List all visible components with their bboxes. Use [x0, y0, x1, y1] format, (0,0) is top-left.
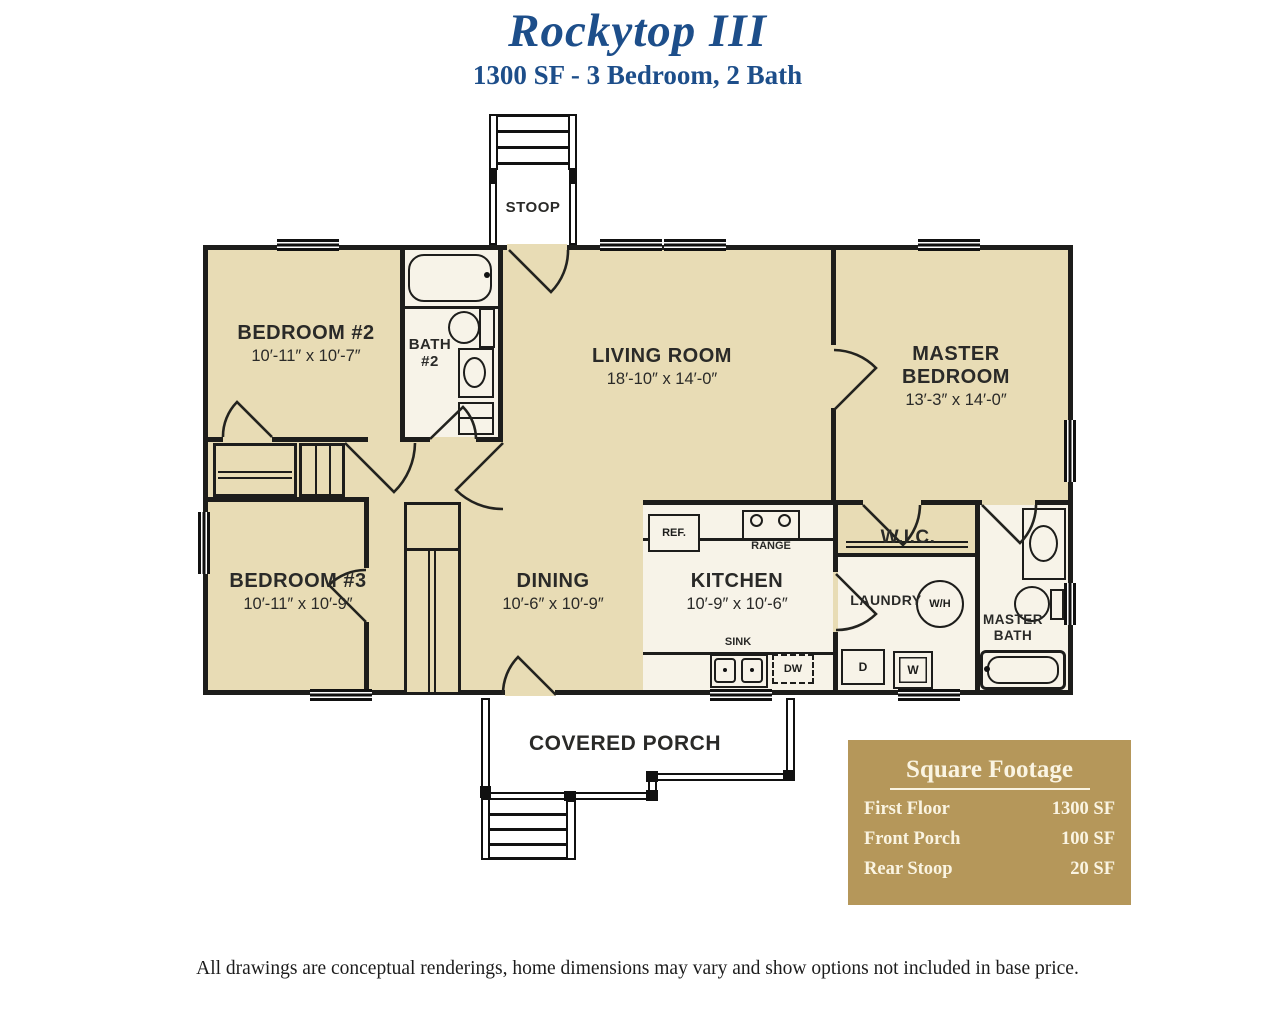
room-label-master-bath: MASTER BATH: [972, 612, 1054, 643]
floor-plan-page: Rockytop III 1300 SF - 3 Bedroom, 2 Bath…: [0, 0, 1275, 1032]
porch-rail: [481, 698, 490, 798]
closet-divider: [315, 446, 317, 494]
kitchen-name: KITCHEN: [647, 570, 827, 593]
bedroom2-name: BEDROOM #2: [216, 322, 396, 345]
wall: [833, 500, 863, 505]
wall: [498, 245, 503, 442]
porch-rail: [786, 698, 795, 778]
living-dims: 18′-10″ x 14′-0″: [562, 370, 762, 389]
window: [710, 689, 772, 701]
wall: [364, 622, 369, 695]
stoop-stair-rail: [489, 114, 498, 170]
stair-tread: [490, 813, 566, 816]
range-burner: [778, 514, 791, 527]
dryer-label: D: [859, 660, 868, 674]
room-label-laundry: LAUNDRY: [834, 592, 938, 608]
porch-post: [646, 790, 658, 801]
square-footage-row: Rear Stoop 20 SF: [848, 859, 1131, 880]
wall: [400, 437, 430, 442]
room-label-kitchen: KITCHEN 10′-9″ x 10′-6″: [647, 570, 827, 614]
window: [898, 689, 960, 701]
square-footage-row: First Floor 1300 SF: [848, 799, 1131, 820]
bathtub-inner: [987, 656, 1059, 684]
sqft-row-label: Rear Stoop: [864, 859, 953, 880]
stair-tread: [490, 843, 566, 846]
washer-label: W: [907, 663, 918, 677]
sqft-row-label: First Floor: [864, 799, 950, 820]
porch-post: [783, 770, 795, 781]
stoop-stair-rail: [568, 114, 577, 170]
window: [277, 239, 339, 251]
rear-door-opening: [505, 689, 555, 696]
dryer: D: [841, 649, 885, 685]
stoop-post: [569, 172, 577, 184]
ref-label: REF.: [662, 527, 686, 539]
wic-wall: [838, 553, 975, 557]
wic-name: W.I.C.: [848, 527, 968, 549]
linen-shelf: [460, 417, 492, 419]
laundry-name: LAUNDRY: [834, 592, 938, 608]
window: [664, 239, 726, 251]
window: [1064, 420, 1076, 482]
room-label-bath2: BATH #2: [404, 336, 456, 371]
wall: [833, 502, 838, 572]
stoop-post: [489, 172, 497, 184]
wall: [831, 245, 836, 345]
master-dims: 13′-3″ x 14′-0″: [872, 391, 1040, 410]
wall: [833, 632, 838, 695]
sink-basin: [1029, 525, 1058, 562]
bath2-name: BATH #2: [404, 336, 456, 371]
window: [918, 239, 980, 251]
wall: [364, 497, 369, 568]
porch-post: [646, 771, 658, 782]
room-label-bedroom3: BEDROOM #3 10′-11″ x 10′-9″: [208, 570, 388, 614]
window: [310, 689, 372, 701]
sqft-row-label: Front Porch: [864, 829, 960, 850]
dw-label: DW: [784, 663, 802, 675]
wall: [203, 437, 223, 442]
sink-basin: [463, 357, 486, 388]
porch-name: COVERED PORCH: [520, 732, 730, 756]
wall: [921, 500, 982, 505]
sqft-row-value: 1300 SF: [1052, 799, 1115, 820]
stair-tread: [490, 857, 566, 860]
room-label-dining: DINING 10′-6″ x 10′-9″: [463, 570, 643, 614]
stair-tread: [498, 162, 568, 165]
stair-tread: [490, 828, 566, 831]
sink-drain: [750, 668, 754, 672]
closet-divider: [428, 551, 430, 692]
front-door-opening: [507, 244, 567, 251]
stair-tread: [498, 114, 568, 117]
sink-label: SINK: [710, 636, 766, 648]
tub-faucet: [484, 272, 490, 278]
bedroom3-dims: 10′-11″ x 10′-9″: [208, 595, 388, 614]
room-label-bedroom2: BEDROOM #2 10′-11″ x 10′-7″: [216, 322, 396, 366]
tub-faucet: [984, 666, 990, 672]
square-footage-title: Square Footage: [890, 756, 1090, 790]
room-label-porch: COVERED PORCH: [520, 732, 730, 756]
wall: [1035, 500, 1073, 505]
closet-divider: [434, 551, 436, 692]
room-label-living: LIVING ROOM 18′-10″ x 14′-0″: [562, 345, 762, 389]
bedroom3-name: BEDROOM #3: [208, 570, 388, 593]
porch-stair-rail: [481, 798, 490, 860]
sqft-row-value: 100 SF: [1061, 829, 1115, 850]
window: [600, 239, 662, 251]
disclaimer-text: All drawings are conceptual renderings, …: [0, 958, 1275, 980]
window: [198, 512, 210, 574]
porch-post: [480, 786, 491, 798]
wall: [643, 500, 833, 505]
wall: [831, 408, 836, 505]
closet-bedroom3: [404, 502, 461, 695]
square-footage-row: Front Porch 100 SF: [848, 829, 1131, 850]
porch-stair-rail: [566, 800, 576, 860]
closet-shelf: [218, 477, 292, 479]
window: [1064, 583, 1076, 625]
refrigerator: REF.: [648, 514, 700, 552]
living-name: LIVING ROOM: [562, 345, 762, 368]
room-label-wic: W.I.C.: [848, 527, 968, 549]
master-bath-name: MASTER BATH: [972, 612, 1054, 643]
dishwasher: DW: [772, 654, 814, 684]
wall: [272, 437, 368, 442]
bedroom2-dims: 10′-11″ x 10′-7″: [216, 347, 396, 366]
master-name: MASTER BEDROOM: [872, 343, 1040, 389]
dining-dims: 10′-6″ x 10′-9″: [463, 595, 643, 614]
stair-tread: [498, 130, 568, 133]
dining-name: DINING: [463, 570, 643, 593]
stair-tread: [498, 146, 568, 149]
washer: W: [893, 651, 933, 689]
page-title: Rockytop III: [0, 4, 1275, 58]
wall: [203, 497, 369, 502]
wall: [476, 437, 503, 442]
range: [742, 510, 800, 540]
stoop-name: STOOP: [495, 199, 571, 216]
closet-shelf: [407, 548, 458, 551]
closet-shelf: [218, 471, 292, 473]
bath-shelf: [479, 308, 495, 348]
page-subtitle: 1300 SF - 3 Bedroom, 2 Bath: [0, 60, 1275, 91]
range-burner: [750, 514, 763, 527]
bathtub: [408, 254, 492, 302]
closet-bedroom2: [213, 443, 297, 497]
closet-divider: [329, 446, 331, 494]
kitchen-dims: 10′-9″ x 10′-6″: [647, 595, 827, 614]
sqft-row-value: 20 SF: [1070, 859, 1115, 880]
room-label-stoop: STOOP: [495, 199, 571, 216]
sink-drain: [723, 668, 727, 672]
square-footage-panel: Square Footage First Floor 1300 SF Front…: [848, 740, 1131, 905]
porch-rail: [648, 773, 795, 781]
room-label-master: MASTER BEDROOM 13′-3″ x 14′-0″: [872, 343, 1040, 410]
range-label: RANGE: [742, 540, 800, 552]
closet-hall: [299, 443, 345, 497]
